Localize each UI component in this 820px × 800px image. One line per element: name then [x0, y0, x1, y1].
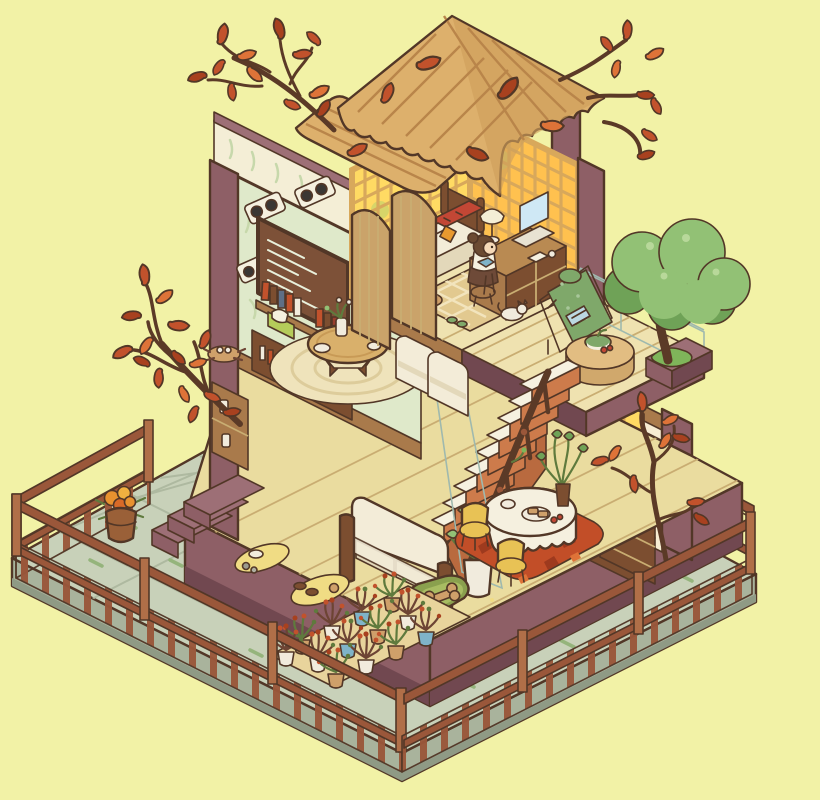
bowl: [249, 550, 263, 558]
shoe: [306, 589, 318, 596]
fence-post: [268, 622, 277, 684]
mouse: [549, 251, 556, 258]
plate: [314, 344, 330, 353]
headrest: [559, 269, 581, 283]
fence-post: [746, 512, 755, 574]
shoe: [294, 583, 306, 590]
fence-post: [634, 572, 643, 634]
fence-post: [140, 558, 149, 620]
teapot: [501, 500, 515, 509]
isometric-house-scene: [0, 0, 820, 800]
fence-post: [12, 494, 21, 556]
fence-post: [518, 630, 527, 692]
sofa-arm-left: [340, 514, 354, 581]
stool: [471, 286, 495, 298]
